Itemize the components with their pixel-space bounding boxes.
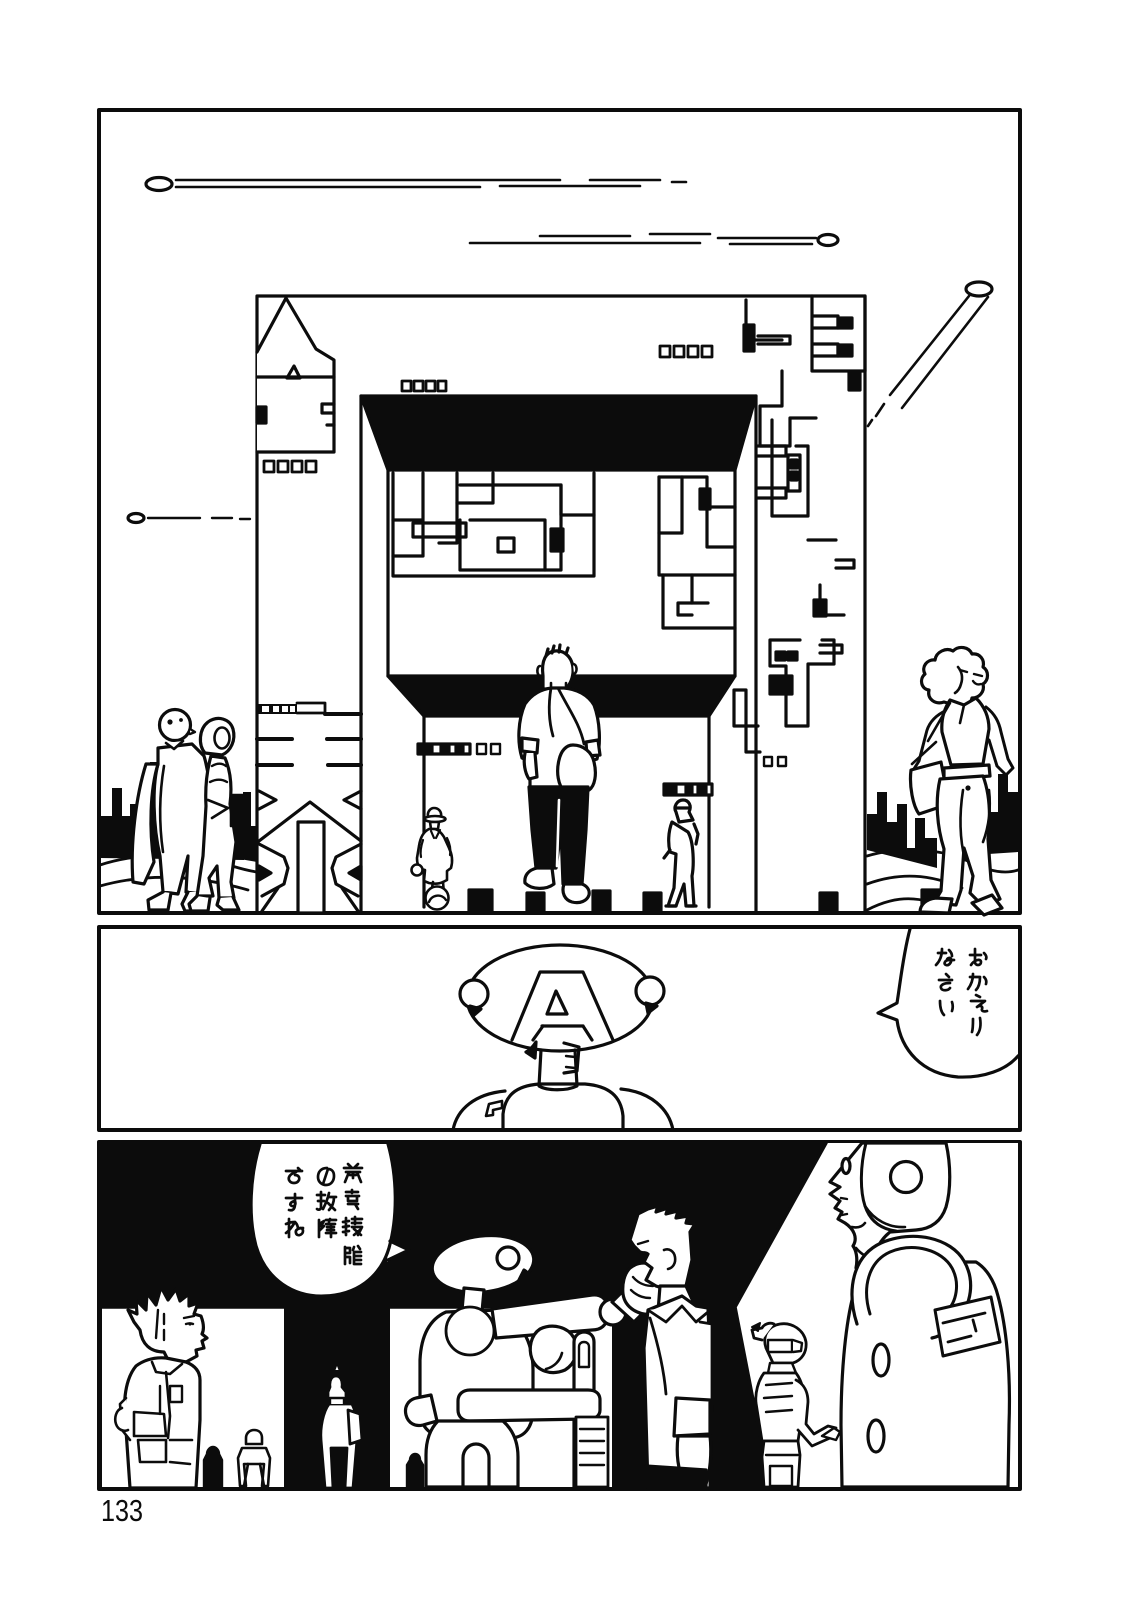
svg-text:133: 133 [101, 1493, 143, 1528]
